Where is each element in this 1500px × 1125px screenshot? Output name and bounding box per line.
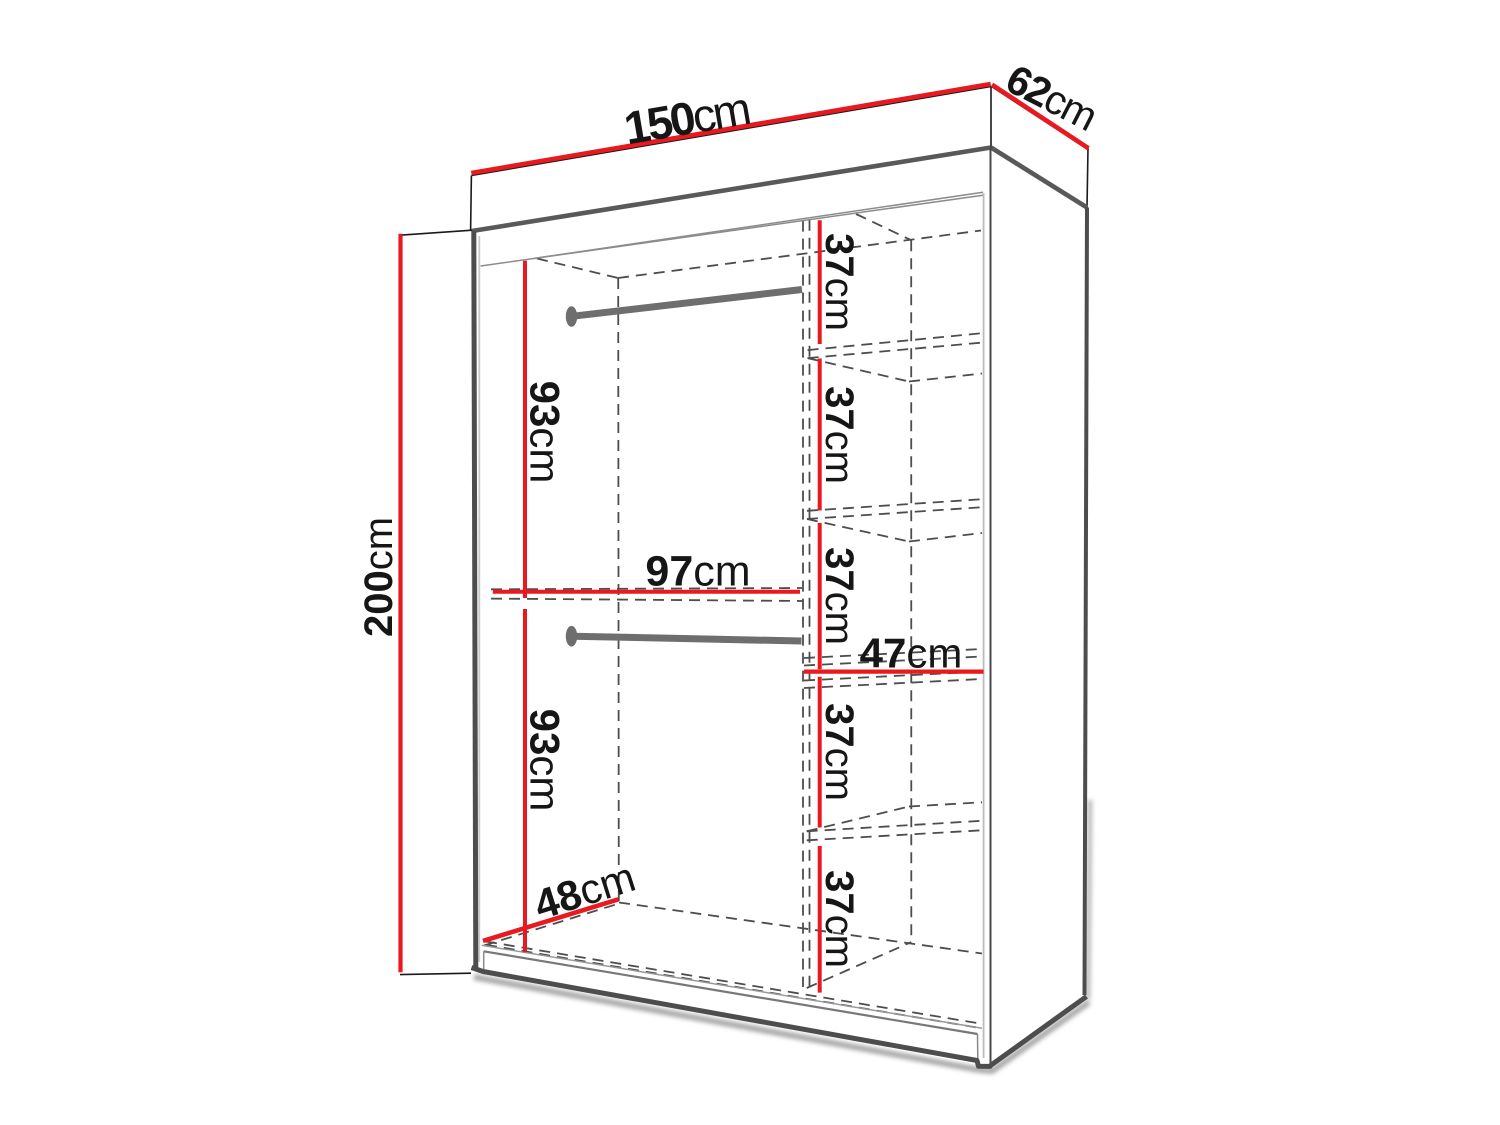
svg-text:37cm: 37cm bbox=[817, 547, 861, 645]
svg-text:97cm: 97cm bbox=[645, 548, 750, 596]
svg-text:47cm: 47cm bbox=[860, 630, 963, 677]
svg-text:93cm: 93cm bbox=[522, 381, 569, 484]
svg-text:93cm: 93cm bbox=[522, 709, 569, 812]
svg-text:37cm: 37cm bbox=[817, 386, 861, 484]
svg-text:37cm: 37cm bbox=[817, 703, 861, 801]
svg-text:200cm: 200cm bbox=[357, 517, 401, 637]
svg-text:37cm: 37cm bbox=[817, 233, 861, 331]
svg-text:37cm: 37cm bbox=[817, 870, 861, 968]
